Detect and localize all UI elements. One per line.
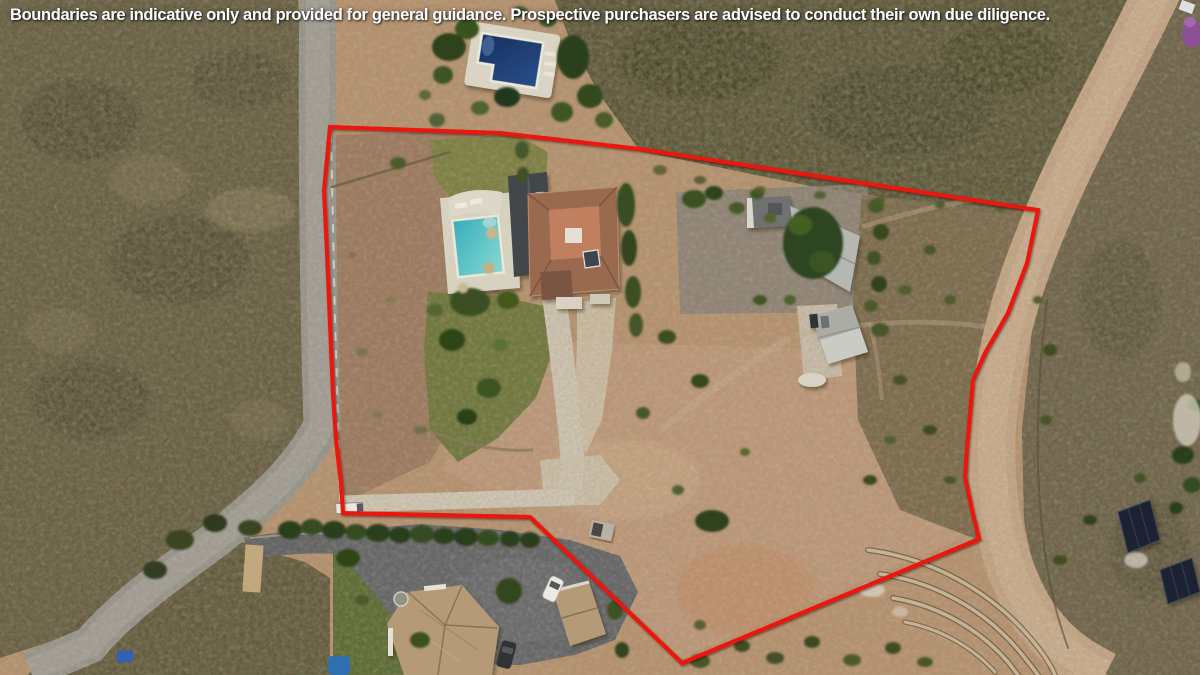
upper-swimming-pool [464, 22, 561, 99]
pergola [565, 228, 582, 243]
aerial-photo-canvas [0, 0, 1200, 675]
blue-tarp [117, 651, 133, 662]
fountain [394, 592, 408, 606]
villa-swimming-pool [452, 216, 504, 277]
parking-island-tree [496, 578, 522, 604]
disclaimer-text: Boundaries are indicative only and provi… [10, 6, 1200, 25]
neighbour-pool-corner [328, 656, 350, 675]
stone-crossing [242, 544, 263, 592]
aerial-photo: Boundaries are indicative only and provi… [0, 0, 1200, 675]
roof-solar-panel [583, 250, 600, 268]
